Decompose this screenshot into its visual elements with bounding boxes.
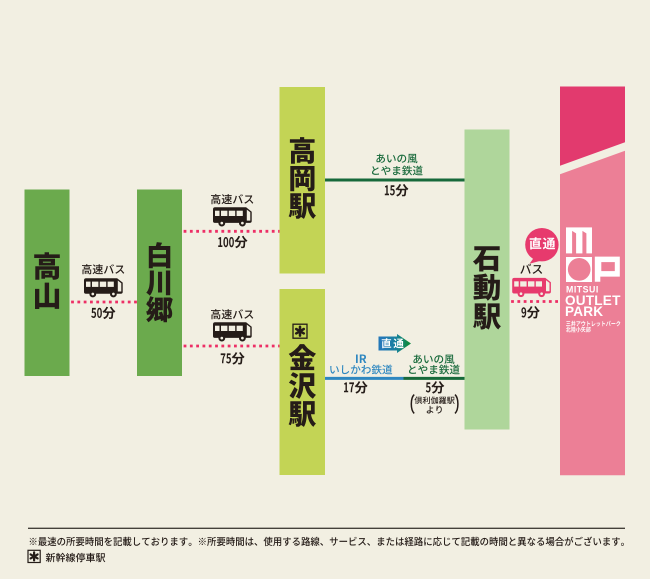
svg-text:PARK: PARK bbox=[565, 304, 603, 319]
